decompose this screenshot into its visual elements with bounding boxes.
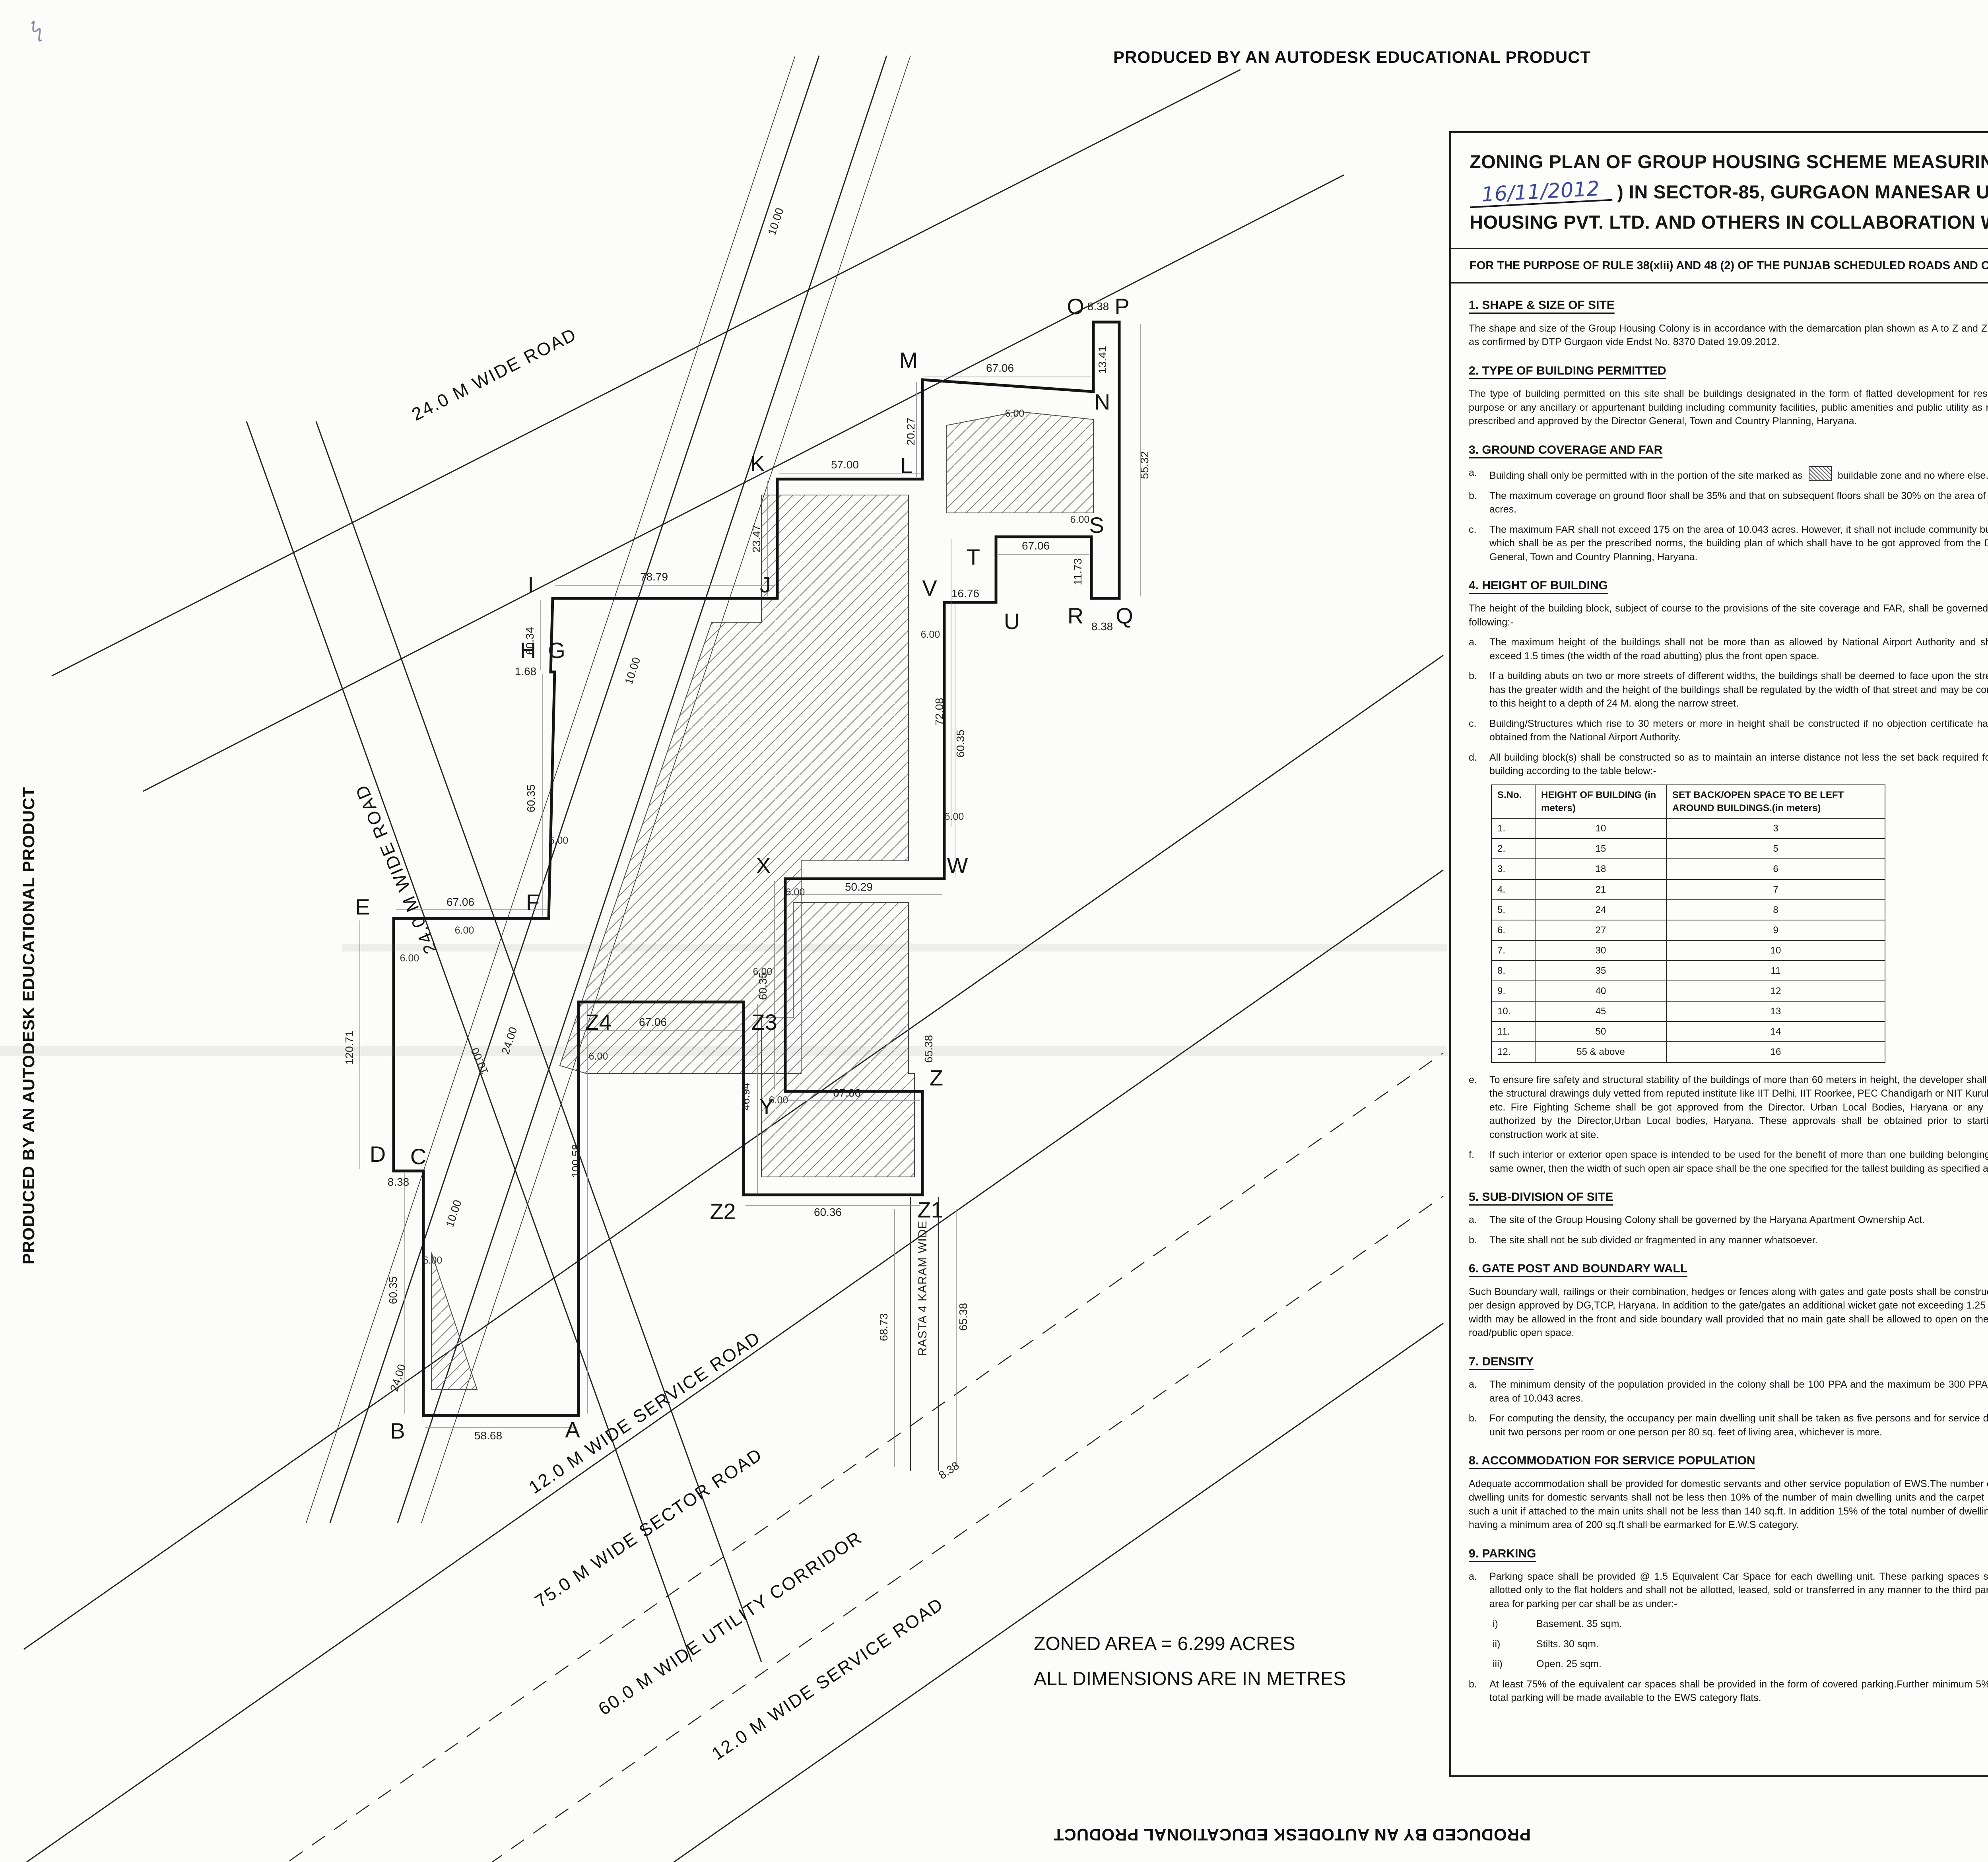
clause-text: Building/Structures which rise to 30 met… [1489, 717, 1988, 744]
clause-item: d.All building block(s) shall be constru… [1469, 751, 1988, 778]
clause-item: i)Basement. 35 sqm. [1469, 1617, 1988, 1631]
table-cell: 10 [1666, 940, 1885, 961]
plan-label-s6: 6.00 [769, 1095, 788, 1106]
clause-text: To ensure fire safety and structural sta… [1489, 1073, 1988, 1142]
plan-label-v_x: X [756, 853, 771, 878]
clause-item: a.The minimum density of the population … [1469, 1378, 1988, 1405]
table-cell: 10 [1535, 818, 1666, 839]
plan-label-s11: 6.00 [455, 925, 474, 936]
table-row: 11.5014 [1491, 1021, 1885, 1042]
clause-label: b. [1469, 669, 1489, 711]
table-cell: 12 [1666, 981, 1885, 1001]
plan-label-v_f: F [526, 889, 540, 914]
clause-text: The site of the Group Housing Colony sha… [1489, 1213, 1988, 1227]
clause-label: a. [1469, 635, 1489, 663]
clause-text: The maximum height of the buildings shal… [1489, 635, 1988, 663]
plan-label-v_v: V [922, 575, 937, 600]
rules-column-left: 1. SHAPE & SIZE OF SITEThe shape and siz… [1451, 283, 1988, 1725]
clause-item: b.The maximum coverage on ground floor s… [1469, 489, 1988, 516]
clause-label: iii) [1493, 1657, 1536, 1671]
table-row: 2.155 [1491, 839, 1885, 859]
clause-label: a. [1469, 1570, 1489, 1611]
section-heading: 4. HEIGHT OF BUILDING [1469, 577, 1988, 594]
table-cell: 9. [1491, 981, 1535, 1001]
buildable-zone-hatch-legend [1809, 466, 1832, 481]
section-5: 5. SUB-DIVISION OF SITEa.The site of the… [1469, 1189, 1988, 1247]
table-row: 8.3511 [1491, 961, 1885, 981]
table-cell: 11 [1666, 961, 1885, 981]
table-cell: 55 & above [1535, 1042, 1666, 1062]
clause-text: All building block(s) shall be construct… [1489, 751, 1988, 778]
plan-label-d_rs: 11.73 [1072, 558, 1084, 585]
table-cell: 15 [1535, 839, 1666, 859]
setback-table: S.No.HEIGHT OF BUILDING (in meters)SET B… [1491, 784, 1885, 1063]
plan-label-zoned2: ALL DIMENSIONS ARE IN METRES [1034, 1668, 1346, 1689]
table-row: 3.186 [1491, 859, 1885, 879]
watermark-left: PRODUCED BY AN AUTODESK EDUCATIONAL PROD… [19, 787, 38, 1264]
plan-label-d_kl: 57.00 [831, 458, 859, 471]
table-cell: 1. [1491, 818, 1535, 839]
clause-text: The site shall not be sub divided or fra… [1489, 1233, 1988, 1247]
table-row: 9.4012 [1491, 981, 1885, 1001]
table-cell: 2. [1491, 839, 1535, 859]
section-9: 9. PARKINGa.Parking space shall be provi… [1469, 1546, 1988, 1705]
plan-label-d_fg: 60.35 [525, 784, 537, 812]
table-cell: 11. [1491, 1021, 1535, 1042]
section-8: 8. ACCOMMODATION FOR SERVICE POPULATIONA… [1469, 1452, 1988, 1532]
title-block: ZONING PLAN OF GROUP HOUSING SCHEME MEAS… [1451, 133, 1988, 249]
clause-item: b.If a building abuts on two or more str… [1469, 669, 1988, 711]
clause-item: iii)Open. 25 sqm. [1469, 1657, 1988, 1671]
zoning-plan-sheet: PRODUCED BY AN AUTODESK EDUCATIONAL PROD… [0, 0, 1988, 1862]
clause-item: a.Building shall only be permitted with … [1469, 466, 1988, 483]
plan-label-d_qr: 8.38 [1091, 620, 1113, 633]
clause-label: a. [1469, 466, 1489, 483]
plan-label-d_jk: 23.47 [750, 525, 763, 553]
table-cell: 3. [1491, 859, 1535, 879]
table-cell: 40 [1535, 981, 1666, 1001]
clause-label: b. [1469, 1678, 1489, 1705]
clause-item: e.To ensure fire safety and structural s… [1469, 1073, 1988, 1142]
paragraph: The type of building permitted on this s… [1469, 387, 1988, 428]
table-row: 10.4513 [1491, 1001, 1885, 1021]
plan-label-v_b: B [390, 1418, 405, 1443]
plan-label-v_t: T [967, 544, 980, 569]
clause-item: c.The maximum FAR shall not exceed 175 o… [1469, 523, 1988, 564]
plan-label-v_s: S [1089, 513, 1104, 538]
plan-label-v_q: Q [1116, 603, 1133, 628]
plan-label-d_838: 8.38 [936, 1459, 961, 1481]
paragraph: Such Boundary wall, railings or their co… [1469, 1285, 1988, 1340]
table-cell: 5 [1666, 839, 1885, 859]
plan-label-s2: 6.00 [1070, 514, 1090, 525]
clause-label: b. [1469, 489, 1489, 516]
plan-label-d_m2: 10.00 [622, 656, 643, 686]
section-4: 4. HEIGHT OF BUILDINGThe height of the b… [1469, 577, 1988, 1175]
watermark-top: PRODUCED BY AN AUTODESK EDUCATIONAL PROD… [1113, 48, 1591, 67]
plan-label-road2: 24.0 M WIDE ROAD [351, 781, 441, 957]
table-row: 7.3010 [1491, 940, 1885, 961]
plan-label-v_d: D [370, 1142, 386, 1167]
clause-label: i) [1493, 1617, 1536, 1631]
plan-label-d_wx: 50.29 [845, 881, 873, 893]
clause-text: If such interior or exterior open space … [1489, 1148, 1988, 1175]
clause-text: Building shall only be permitted with in… [1489, 466, 1988, 483]
setback-table-header: HEIGHT OF BUILDING (in meters) [1535, 785, 1666, 818]
clause-text: If a building abuts on two or more stree… [1489, 669, 1988, 711]
table-cell: 6 [1666, 859, 1885, 879]
plan-label-d_z1z2: 60.36 [814, 1206, 842, 1218]
table-cell: 21 [1535, 880, 1666, 900]
section-heading: 2. TYPE OF BUILDING PERMITTED [1469, 363, 1988, 379]
plan-label-s5: 6.00 [786, 887, 805, 898]
clause-text: Stilts. 30 sqm. [1536, 1637, 1988, 1651]
plan-label-v_z: Z [930, 1065, 943, 1090]
clause-text: Basement. 35 sqm. [1536, 1617, 1988, 1631]
plan-label-s7: 6.00 [753, 966, 773, 977]
section-heading: 5. SUB-DIVISION OF SITE [1469, 1189, 1988, 1205]
watermark-bottom: PRODUCED BY AN AUTODESK EDUCATIONAL PROD… [1093, 1825, 1531, 1844]
clause-label: f. [1469, 1148, 1489, 1175]
plan-label-d_bc: 60.35 [387, 1276, 399, 1304]
plan-label-v_z4: Z4 [585, 1010, 611, 1035]
table-row: 4.217 [1491, 880, 1885, 900]
plan-label-s9: 6.00 [423, 1255, 443, 1266]
plan-label-d_vw: 60.35 [954, 730, 967, 757]
plan-label-s4: 6.00 [945, 811, 964, 822]
plan-label-rasta: RASTA 4 KARAM WIDE [916, 1221, 929, 1356]
table-cell: 8. [1491, 961, 1535, 981]
plan-label-d_ef: 67.06 [447, 896, 474, 908]
plan-label-v_o: O [1067, 294, 1084, 319]
plan-label-d_lm: 20.27 [905, 417, 917, 445]
plan-label-s12: 6.00 [400, 953, 419, 964]
table-cell: 14 [1666, 1021, 1885, 1042]
section-6: 6. GATE POST AND BOUNDARY WALLSuch Bound… [1469, 1260, 1988, 1340]
plan-label-d_gh: 1.68 [515, 665, 537, 678]
table-cell: 27 [1535, 920, 1666, 940]
clause-item: a.Parking space shall be provided @ 1.5 … [1469, 1570, 1988, 1611]
plan-label-v_m: M [899, 348, 918, 373]
clause-label: e. [1469, 1073, 1489, 1142]
table-cell: 50 [1535, 1021, 1666, 1042]
clause-label: b. [1469, 1412, 1489, 1439]
scan-crease [0, 1046, 1447, 1056]
plan-label-d_pq: 55.32 [1138, 451, 1151, 479]
section-heading: 3. GROUND COVERAGE AND FAR [1469, 442, 1988, 458]
clause-text: Parking space shall be provided @ 1.5 Eq… [1489, 1570, 1988, 1611]
clause-item: b.For computing the density, the occupan… [1469, 1412, 1988, 1439]
paragraph: Adequate accommodation shall be provided… [1469, 1477, 1988, 1532]
title-text-1: ZONING PLAN OF GROUP HOUSING SCHEME MEAS… [1470, 151, 1988, 172]
plan-label-d_r2: 65.38 [957, 1303, 969, 1331]
table-cell: 30 [1535, 940, 1666, 961]
setback-table-header: SET BACK/OPEN SPACE TO BE LEFT AROUND BU… [1666, 785, 1885, 818]
table-cell: 5. [1491, 900, 1535, 920]
plan-label-d_op: 8.38 [1087, 300, 1109, 313]
plan-label-v_w: W [947, 853, 968, 878]
plan-label-d_w2: 24.00 [388, 1363, 408, 1393]
section-1: 1. SHAPE & SIZE OF SITEThe shape and siz… [1469, 297, 1988, 349]
licence-date-handwritten: 16/11/2012 [1469, 177, 1612, 208]
table-row: 12.55 & above16 [1491, 1042, 1885, 1062]
clause-label: c. [1469, 523, 1489, 564]
plan-label-v_i: I [528, 572, 534, 597]
table-cell: 16 [1666, 1042, 1885, 1062]
plan-label-v_u: U [1004, 609, 1020, 634]
section-7: 7. DENSITYa.The minimum density of the p… [1469, 1353, 1988, 1439]
site-plan: IJKLMNOPQRSTUVWXYZZ1Z2Z3Z4DCBAEFGH78.792… [0, 0, 1449, 1862]
table-row: 1.103 [1491, 818, 1885, 839]
scan-crease [342, 944, 1447, 951]
plan-label-zoned1: ZONED AREA = 6.299 ACRES [1034, 1633, 1295, 1654]
clause-item: b.At least 75% of the equivalent car spa… [1469, 1678, 1988, 1705]
section-heading: 9. PARKING [1469, 1546, 1988, 1562]
setback-table-header: S.No. [1491, 785, 1535, 818]
clause-text: Open. 25 sqm. [1536, 1657, 1988, 1671]
plan-label-d_tu: 72.08 [933, 698, 945, 726]
plan-label-d_st: 67.06 [1022, 540, 1050, 552]
plan-label-d_no: 13.41 [1096, 346, 1109, 374]
clause-label: c. [1469, 717, 1489, 744]
pencil-scribble [32, 21, 42, 41]
plan-label-v_k: K [750, 451, 765, 476]
table-cell: 6. [1491, 920, 1535, 940]
plan-label-v_z2: Z2 [710, 1199, 736, 1224]
section-heading: 8. ACCOMMODATION FOR SERVICE POPULATION [1469, 1452, 1988, 1469]
plan-label-d_r1: 68.73 [878, 1313, 890, 1341]
clause-label: a. [1469, 1378, 1489, 1405]
plan-label-v_e: E [355, 894, 370, 919]
clause-item: c.Building/Structures which rise to 30 m… [1469, 717, 1988, 744]
clause-label: d. [1469, 751, 1489, 778]
plan-label-v_p: P [1114, 294, 1129, 319]
plan-label-d_yz: 67.06 [833, 1087, 861, 1099]
plan-label-d_z3z4: 67.06 [639, 1016, 667, 1028]
plan-label-s3: 6.00 [921, 629, 940, 640]
plan-label-v_l: L [900, 453, 912, 478]
plan-label-d_z4a: 100.58 [570, 1144, 582, 1178]
plan-label-v_c: C [410, 1144, 426, 1169]
table-cell: 18 [1535, 859, 1666, 879]
clause-label: ii) [1493, 1637, 1536, 1651]
table-cell: 12. [1491, 1042, 1535, 1062]
table-cell: 9 [1666, 920, 1885, 940]
plan-label-road1: 24.0 M WIDE ROAD [408, 324, 580, 424]
clause-item: f.If such interior or exterior open spac… [1469, 1148, 1988, 1175]
section-2: 2. TYPE OF BUILDING PERMITTEDThe type of… [1469, 363, 1988, 428]
clause-text: For computing the density, the occupancy… [1489, 1412, 1988, 1439]
clause-label: a. [1469, 1213, 1489, 1227]
table-cell: 35 [1535, 961, 1666, 981]
clause-text: The maximum FAR shall not exceed 175 on … [1489, 523, 1988, 564]
table-cell: 13 [1666, 1001, 1885, 1021]
clause-item: a.The maximum height of the buildings sh… [1469, 635, 1988, 663]
table-cell: 4. [1491, 880, 1535, 900]
table-row: 5.248 [1491, 900, 1885, 920]
table-cell: 7 [1666, 880, 1885, 900]
plan-label-d_m1: 10.00 [765, 206, 786, 237]
paragraph: The shape and size of the Group Housing … [1469, 322, 1988, 349]
section-heading: 7. DENSITY [1469, 1353, 1988, 1370]
plan-label-d_mn: 67.06 [986, 362, 1014, 374]
paragraph: The height of the building block, subjec… [1469, 602, 1988, 629]
plan-label-d_hi: 60.34 [524, 627, 536, 655]
table-cell: 7. [1491, 940, 1535, 961]
plan-label-d_m3: 10.00 [443, 1198, 464, 1229]
section-heading: 1. SHAPE & SIZE OF SITE [1469, 297, 1988, 313]
plan-label-d_cd: 8.38 [388, 1176, 410, 1188]
plan-label-d_uv: 16.76 [951, 587, 979, 600]
plan-label-v_j: J [760, 572, 771, 597]
clause-text: At least 75% of the equivalent car space… [1489, 1678, 1988, 1705]
plan-label-v_n: N [1094, 389, 1110, 414]
clause-text: The minimum density of the population pr… [1489, 1378, 1988, 1405]
section-3: 3. GROUND COVERAGE AND FARa.Building sha… [1469, 442, 1988, 564]
plan-label-v_z3: Z3 [751, 1010, 777, 1035]
subtitle: FOR THE PURPOSE OF RULE 38(xlii) AND 48 … [1451, 249, 1988, 283]
plan-label-v_z1: Z1 [917, 1197, 943, 1222]
plan-label-d_z2z3: 46.94 [740, 1083, 752, 1111]
plan-label-d_ab: 58.68 [474, 1429, 502, 1442]
plan-label-v_g: G [548, 638, 565, 663]
clause-item: ii)Stilts. 30 sqm. [1469, 1637, 1988, 1651]
rules-panel: ZONING PLAN OF GROUP HOUSING SCHEME MEAS… [1449, 131, 1988, 1777]
table-cell: 10. [1491, 1001, 1535, 1021]
table-cell: 8 [1666, 900, 1885, 920]
table-cell: 24 [1535, 900, 1666, 920]
clause-text: The maximum coverage on ground floor sha… [1489, 489, 1988, 516]
plan-label-s1: 6.00 [1005, 408, 1025, 419]
clause-label: b. [1469, 1233, 1489, 1247]
plan-label-v_r: R [1068, 603, 1083, 628]
plan-label-v_a: A [565, 1417, 580, 1442]
table-cell: 45 [1535, 1001, 1666, 1021]
plan-label-s10: 6.00 [549, 835, 569, 846]
plan-label-d_ij: 78.79 [640, 571, 668, 583]
table-row: 6.279 [1491, 920, 1885, 940]
section-heading: 6. GATE POST AND BOUNDARY WALL [1469, 1260, 1988, 1277]
clause-item: b.The site shall not be sub divided or f… [1469, 1233, 1988, 1247]
clause-item: a.The site of the Group Housing Colony s… [1469, 1213, 1988, 1227]
table-cell: 3 [1666, 818, 1885, 839]
